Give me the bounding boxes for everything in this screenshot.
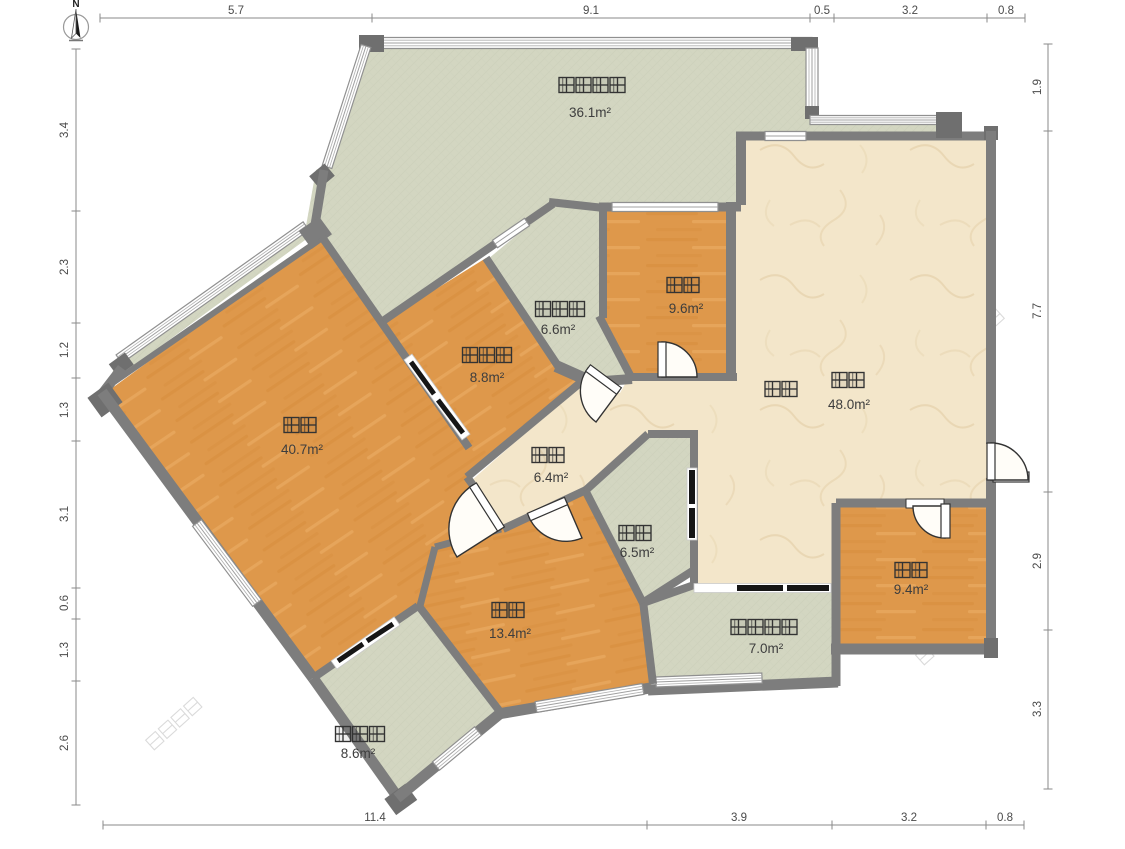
svg-text:36.1m²: 36.1m² [569, 105, 612, 120]
svg-text:9.6m²: 9.6m² [669, 301, 704, 316]
svg-text:3.2: 3.2 [901, 812, 917, 824]
svg-text:7.7: 7.7 [1032, 303, 1044, 319]
svg-text:0.8: 0.8 [997, 812, 1013, 824]
svg-text:13.4m²: 13.4m² [489, 626, 532, 641]
svg-text:0.8: 0.8 [998, 5, 1014, 17]
svg-text:3.1: 3.1 [59, 506, 71, 522]
svg-text:40.7m²: 40.7m² [281, 442, 324, 457]
svg-text:9.1: 9.1 [583, 5, 599, 17]
svg-text:1.3: 1.3 [59, 402, 71, 418]
svg-text:3.9: 3.9 [731, 812, 747, 824]
svg-text:7.0m²: 7.0m² [749, 641, 784, 656]
svg-text:2.9: 2.9 [1032, 553, 1044, 569]
svg-text:6.5m²: 6.5m² [620, 545, 655, 560]
svg-text:9.4m²: 9.4m² [894, 582, 929, 597]
svg-text:1.2: 1.2 [59, 342, 71, 358]
svg-text:3.2: 3.2 [902, 5, 918, 17]
svg-text:11.4: 11.4 [364, 812, 386, 824]
svg-text:8.8m²: 8.8m² [470, 370, 505, 385]
svg-text:3.4: 3.4 [59, 121, 71, 138]
svg-text:0.6: 0.6 [59, 595, 71, 611]
svg-text:1.3: 1.3 [59, 642, 71, 658]
svg-text:2.3: 2.3 [59, 259, 71, 275]
svg-text:48.0m²: 48.0m² [828, 397, 871, 412]
svg-text:6.4m²: 6.4m² [534, 470, 569, 485]
svg-text:0.5: 0.5 [814, 5, 830, 17]
svg-text:N: N [72, 0, 79, 10]
svg-text:6.6m²: 6.6m² [541, 322, 576, 337]
svg-text:2.6: 2.6 [59, 735, 71, 751]
svg-text:8.6m²: 8.6m² [341, 746, 376, 761]
svg-text:3.3: 3.3 [1032, 701, 1044, 717]
svg-text:5.7: 5.7 [228, 5, 244, 17]
svg-text:1.9: 1.9 [1032, 79, 1044, 95]
